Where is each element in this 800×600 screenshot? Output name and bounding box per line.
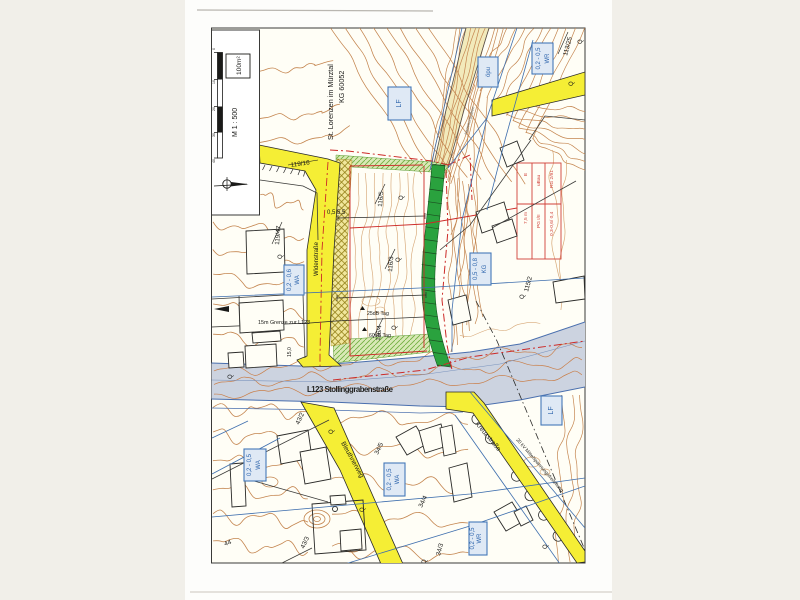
svg-text:WR: WR — [477, 533, 483, 544]
svg-text:LF: LF — [396, 99, 403, 107]
svg-text:0,2 - 0,6: 0,2 - 0,6 — [287, 268, 293, 291]
svg-text:PG I/II: PG I/II — [536, 214, 542, 228]
svg-text:Q: Q — [278, 254, 284, 259]
svg-text:St. Lorenzen im Mürztal: St. Lorenzen im Mürztal — [326, 64, 335, 140]
svg-text:116/4: 116/4 — [375, 325, 383, 342]
svg-text:Q: Q — [569, 81, 575, 86]
svg-text:öpu: öpu — [486, 67, 492, 77]
svg-text:Q: Q — [228, 374, 234, 379]
svg-text:Q: Q — [392, 325, 398, 330]
svg-text:Q: Q — [396, 257, 402, 262]
svg-text:WA: WA — [295, 275, 301, 284]
svg-text:LF: LF — [548, 406, 555, 414]
svg-text:100m²: 100m² — [236, 56, 243, 75]
svg-text:Q: Q — [399, 195, 405, 200]
svg-text:Q: Q — [360, 507, 366, 512]
svg-text:10: 10 — [212, 80, 216, 84]
svg-text:0: 0 — [212, 48, 216, 50]
svg-text:E: E — [523, 173, 529, 176]
svg-text:Widenstraße: Widenstraße — [314, 241, 320, 276]
svg-text:25dB Tag: 25dB Tag — [367, 311, 389, 317]
svg-text:M 1 : 500: M 1 : 500 — [232, 108, 239, 137]
svg-text:40: 40 — [212, 159, 216, 163]
svg-text:Q: Q — [543, 544, 549, 549]
svg-text:L123 Stollinggrabenstraße: L123 Stollinggrabenstraße — [307, 385, 394, 394]
svg-text:KG: KG — [482, 264, 488, 273]
svg-text:WR: WR — [545, 53, 551, 64]
svg-text:0,5 5,5: 0,5 5,5 — [327, 210, 346, 216]
svg-text:Q: Q — [520, 294, 526, 299]
svg-text:0,2 - 0,5: 0,2 - 0,5 — [536, 47, 542, 70]
svg-text:RG 2/91: RG 2/91 — [549, 170, 555, 188]
svg-text:0,2 - 0,5: 0,2 - 0,5 — [387, 468, 393, 491]
svg-text:0,2 - 0,5: 0,2 - 0,5 — [470, 527, 476, 550]
svg-text:WA: WA — [395, 475, 401, 484]
svg-text:7,5 m: 7,5 m — [523, 212, 529, 224]
svg-text:uBau: uBau — [536, 174, 542, 186]
svg-text:0,2 - 0,5: 0,2 - 0,5 — [247, 453, 253, 476]
svg-text:0,3-0,6/ 0,4: 0,3-0,6/ 0,4 — [549, 211, 555, 236]
svg-text:30: 30 — [212, 133, 216, 137]
svg-text:15m Grenze zur L123: 15m Grenze zur L123 — [258, 320, 310, 326]
svg-text:KG 60052: KG 60052 — [337, 71, 346, 103]
svg-text:20: 20 — [212, 107, 216, 111]
svg-text:WA: WA — [256, 460, 262, 469]
svg-text:116/5: 116/5 — [377, 191, 385, 208]
svg-text:0,5 - 0,8: 0,5 - 0,8 — [473, 257, 479, 280]
svg-text:Q: Q — [329, 429, 335, 434]
svg-text:15,0: 15,0 — [287, 347, 293, 357]
svg-text:Q: Q — [578, 39, 584, 44]
svg-text:116/3: 116/3 — [387, 256, 395, 273]
